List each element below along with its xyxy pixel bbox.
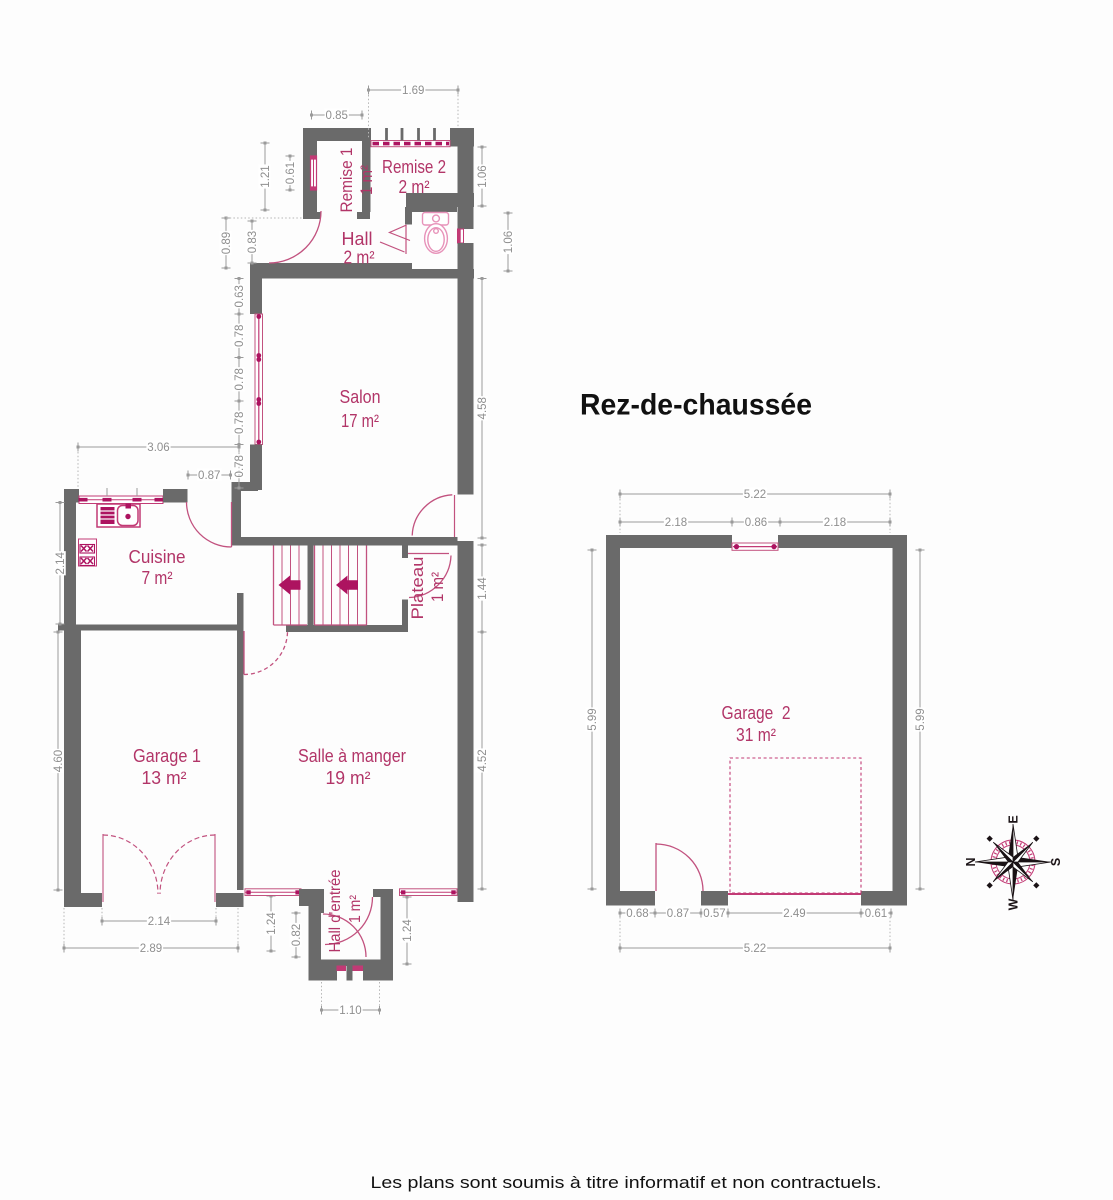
svg-text:4.52: 4.52 — [477, 749, 489, 771]
svg-text:1 m²: 1 m² — [428, 572, 447, 602]
svg-text:0.78: 0.78 — [234, 412, 246, 434]
svg-text:19 m²: 19 m² — [326, 768, 371, 788]
svg-text:0.87: 0.87 — [667, 908, 689, 920]
svg-text:5.22: 5.22 — [744, 489, 766, 501]
svg-text:13 m²: 13 m² — [142, 768, 187, 788]
svg-text:0.87: 0.87 — [198, 470, 220, 482]
svg-text:2.89: 2.89 — [140, 943, 162, 955]
svg-text:2.49: 2.49 — [783, 908, 805, 920]
svg-text:1.44: 1.44 — [477, 577, 489, 600]
svg-text:0.85: 0.85 — [326, 110, 348, 122]
svg-text:1 m²: 1 m² — [347, 895, 364, 923]
svg-text:Salon: Salon — [340, 387, 381, 407]
svg-text:1.06: 1.06 — [503, 231, 515, 253]
svg-text:2.18: 2.18 — [824, 517, 846, 529]
svg-text:1.06: 1.06 — [477, 165, 489, 187]
svg-text:0.89: 0.89 — [221, 232, 233, 254]
svg-text:Remise 1: Remise 1 — [337, 148, 356, 213]
svg-text:7 m²: 7 m² — [142, 568, 173, 588]
svg-text:4.58: 4.58 — [477, 397, 489, 419]
svg-text:1.69: 1.69 — [402, 85, 424, 97]
svg-text:2.18: 2.18 — [665, 517, 687, 529]
svg-text:31 m²: 31 m² — [736, 725, 776, 745]
svg-text:Hall: Hall — [342, 229, 373, 249]
svg-text:1.10: 1.10 — [339, 1005, 361, 1017]
svg-text:3.06: 3.06 — [147, 442, 169, 454]
svg-text:2.14: 2.14 — [148, 916, 171, 928]
svg-text:0.57: 0.57 — [703, 908, 725, 920]
svg-text:0.61: 0.61 — [865, 908, 887, 920]
svg-text:1 m²: 1 m² — [357, 165, 376, 195]
svg-text:N: N — [964, 857, 978, 866]
svg-text:Rez-de-chaussée: Rez-de-chaussée — [580, 389, 812, 422]
svg-text:W: W — [1006, 898, 1020, 910]
svg-text:1.24: 1.24 — [402, 919, 414, 942]
svg-text:0.86: 0.86 — [745, 517, 767, 529]
svg-text:1.24: 1.24 — [266, 912, 278, 935]
svg-text:E: E — [1006, 815, 1020, 823]
svg-text:2 m²: 2 m² — [399, 177, 430, 197]
svg-text:Les plans sont soumis à titre: Les plans sont soumis à titre informatif… — [371, 1173, 882, 1192]
svg-text:2 m²: 2 m² — [344, 248, 375, 268]
svg-text:5.99: 5.99 — [915, 708, 927, 730]
svg-text:5.22: 5.22 — [744, 943, 766, 955]
svg-text:1.21: 1.21 — [260, 165, 272, 187]
svg-text:Cuisine: Cuisine — [129, 547, 186, 567]
svg-text:5.99: 5.99 — [587, 708, 599, 730]
svg-text:Salle à manger: Salle à manger — [298, 746, 406, 766]
svg-text:Plateau: Plateau — [408, 557, 427, 620]
svg-text:0.82: 0.82 — [291, 924, 303, 946]
svg-text:0.83: 0.83 — [247, 231, 259, 253]
svg-text:Remise 2: Remise 2 — [382, 157, 446, 177]
svg-text:0.78: 0.78 — [234, 455, 246, 477]
svg-text:0.78: 0.78 — [234, 325, 246, 347]
svg-text:17 m²: 17 m² — [341, 411, 379, 431]
svg-text:S: S — [1049, 858, 1063, 866]
svg-text:Garage 2: Garage 2 — [722, 703, 791, 723]
svg-text:4.60: 4.60 — [53, 750, 65, 772]
svg-text:2.14: 2.14 — [55, 551, 67, 574]
svg-text:Garage 1: Garage 1 — [133, 746, 201, 766]
svg-text:Hall d'entrée: Hall d'entrée — [327, 870, 344, 953]
svg-text:0.78: 0.78 — [234, 368, 246, 390]
svg-text:0.61: 0.61 — [285, 162, 297, 184]
svg-text:0.63: 0.63 — [234, 285, 246, 307]
svg-text:0.68: 0.68 — [626, 908, 648, 920]
